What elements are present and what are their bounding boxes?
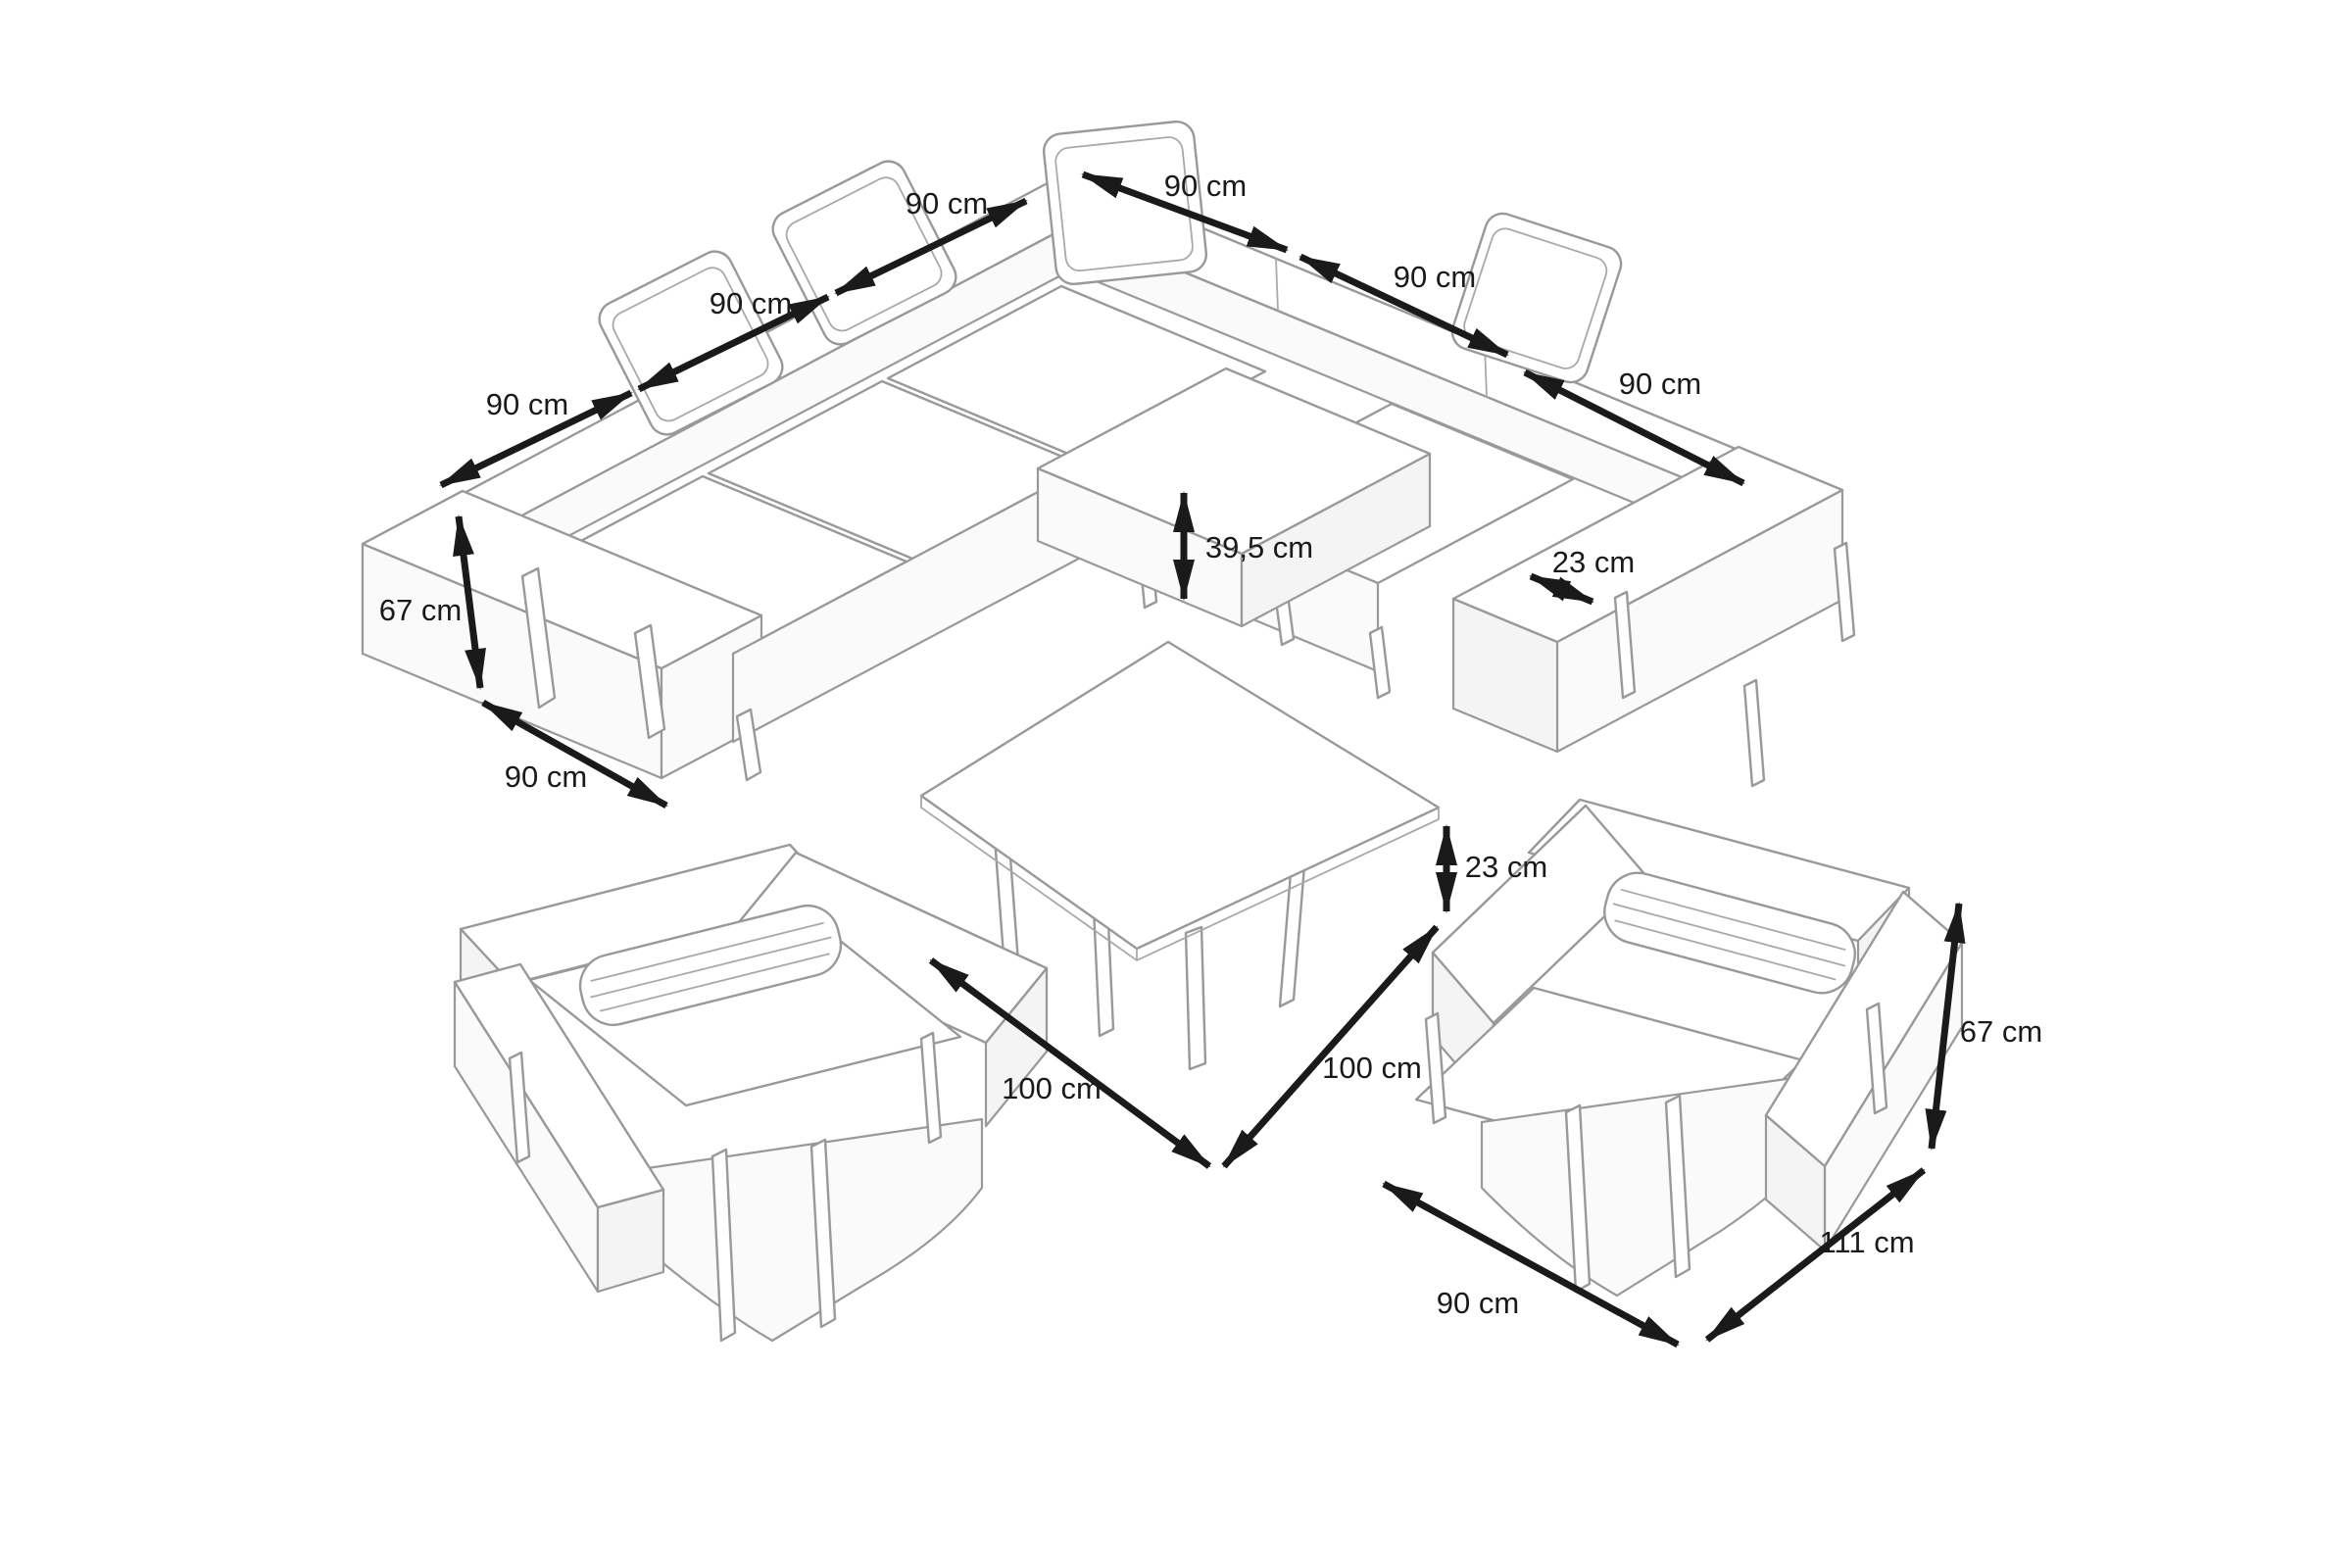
armchair-base bbox=[627, 1119, 982, 1341]
dimension-label: 23 cm bbox=[1552, 545, 1635, 579]
dimension-label: 90 cm bbox=[505, 759, 587, 794]
dimension-label: 90 cm bbox=[1437, 1286, 1519, 1320]
blade-leg bbox=[1744, 680, 1764, 786]
dimension-label: 90 cm bbox=[906, 186, 988, 220]
blade-leg bbox=[1186, 927, 1205, 1069]
armchair-back-left bbox=[455, 845, 1047, 1341]
dimension-label: 67 cm bbox=[379, 593, 462, 627]
blade-leg bbox=[921, 1033, 941, 1143]
dimension-label: 23 cm bbox=[1465, 850, 1547, 884]
dimension-label: 90 cm bbox=[1164, 169, 1247, 203]
back-pillow bbox=[1042, 120, 1207, 285]
blade-leg bbox=[1835, 543, 1854, 641]
dimension-label: 90 cm bbox=[1619, 367, 1701, 401]
furniture-dimension-diagram: 90 cm 90 cm 90 cm 90 cm 90 cm 90 cm 67 c… bbox=[0, 0, 2352, 1568]
dimension-label: 90 cm bbox=[710, 286, 792, 320]
diagram-canvas: 90 cm 90 cm 90 cm 90 cm 90 cm 90 cm 67 c… bbox=[0, 0, 2352, 1568]
dimension-label: 90 cm bbox=[1394, 260, 1476, 294]
dimension-label: 100 cm bbox=[1002, 1071, 1102, 1105]
dimension-label: 100 cm bbox=[1322, 1051, 1422, 1085]
dimension-label: 111 cm bbox=[1819, 1225, 1914, 1259]
blade-leg bbox=[1370, 627, 1390, 698]
dimension-label: 67 cm bbox=[1960, 1014, 2042, 1049]
dimension-table-depth: 100 cm bbox=[1224, 927, 1437, 1166]
dimension-label: 90 cm bbox=[486, 387, 568, 421]
dimension-label: 39,5 cm bbox=[1205, 530, 1313, 564]
